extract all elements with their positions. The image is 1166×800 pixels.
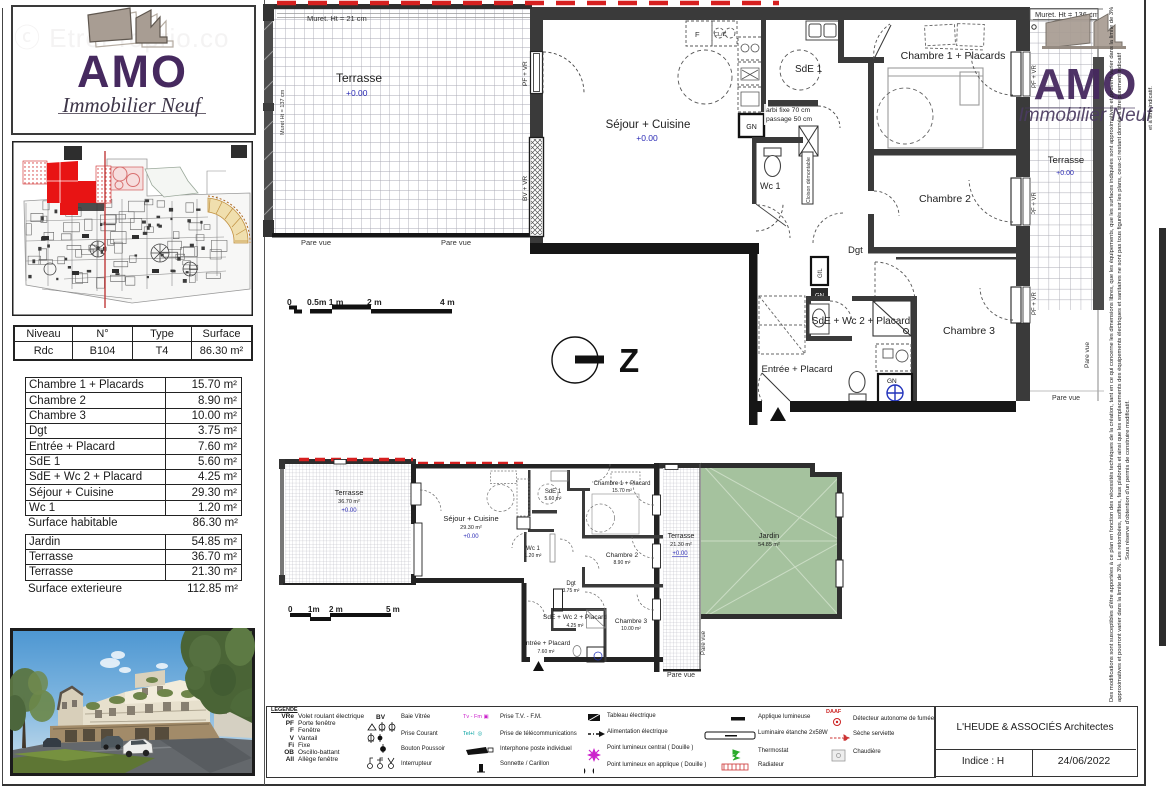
- svg-text:Jardin: Jardin: [759, 531, 779, 540]
- svg-text:4 m: 4 m: [440, 297, 455, 307]
- svg-text:Wc 1: Wc 1: [760, 181, 781, 191]
- svg-text:Terrasse: Terrasse: [668, 533, 695, 540]
- svg-text:PF + VR: PF + VR: [522, 61, 529, 86]
- svg-text:Des modifications sont suscept: Des modifications sont susceptibles d'êt…: [1109, 7, 1115, 702]
- svg-text:Pare vue: Pare vue: [701, 630, 707, 655]
- svg-text:7.60 m²: 7.60 m²: [538, 649, 555, 655]
- svg-text:F: F: [695, 30, 700, 39]
- svg-text:Z: Z: [619, 342, 639, 379]
- svg-text:10.00 m²: 10.00 m²: [621, 626, 641, 632]
- svg-text:1.20 m²: 1.20 m²: [525, 553, 542, 559]
- svg-text:Chambre 1 + Placards: Chambre 1 + Placards: [901, 50, 1006, 62]
- svg-text:GN: GN: [887, 378, 897, 385]
- svg-text:SdE 1: SdE 1: [545, 489, 562, 495]
- svg-text:Entrée + Placard: Entrée + Placard: [522, 640, 571, 647]
- svg-text:+0.00: +0.00: [463, 534, 479, 540]
- svg-text:GfL: GfL: [818, 268, 824, 278]
- svg-text:+0.00: +0.00: [636, 133, 658, 143]
- svg-text:54.85 m²: 54.85 m²: [758, 542, 780, 548]
- svg-text:et à titre indicatif.: et à titre indicatif.: [1148, 86, 1154, 130]
- svg-text:8.90 m²: 8.90 m²: [614, 560, 631, 566]
- svg-text:Entrée + Placard: Entrée + Placard: [761, 364, 832, 375]
- svg-text:passage 50 cm: passage 50 cm: [766, 116, 812, 123]
- svg-text:+0.00: +0.00: [346, 88, 368, 98]
- svg-text:Pare vue: Pare vue: [441, 238, 471, 247]
- svg-text:+0.00: +0.00: [1056, 170, 1074, 177]
- svg-text:Séjour + Cuisine: Séjour + Cuisine: [443, 514, 498, 523]
- svg-text:4.25 m²: 4.25 m²: [567, 623, 584, 629]
- svg-text:2 m: 2 m: [329, 605, 343, 614]
- svg-text:CL/C: CL/C: [714, 32, 727, 38]
- svg-text:Pare vue: Pare vue: [301, 238, 331, 247]
- svg-text:Wc 1: Wc 1: [526, 546, 540, 552]
- svg-text:29.30 m²: 29.30 m²: [460, 525, 482, 531]
- svg-text:36.70 m²: 36.70 m²: [338, 499, 360, 505]
- svg-text:Pare vue: Pare vue: [1052, 395, 1080, 402]
- svg-text:Cloison démontable: Cloison démontable: [806, 157, 812, 203]
- svg-text:approximatives et pourront var: approximatives et pourront varier dans l…: [1117, 52, 1123, 702]
- svg-text:1m: 1m: [308, 605, 320, 614]
- svg-text:15.70 m²: 15.70 m²: [612, 488, 632, 494]
- svg-text:Séjour + Cuisine: Séjour + Cuisine: [606, 119, 691, 131]
- svg-text:Terrasse: Terrasse: [1048, 155, 1084, 166]
- svg-text:Chambre 2: Chambre 2: [919, 193, 971, 205]
- svg-text:SdE + Wc 2 + Placard: SdE + Wc 2 + Placard: [543, 614, 607, 621]
- svg-text:0: 0: [288, 605, 293, 614]
- svg-text:GN: GN: [746, 124, 757, 131]
- svg-text:Sous réserve d'obtention d'un: Sous réserve d'obtention d'un permis de …: [1125, 400, 1131, 560]
- svg-text:Dgt: Dgt: [848, 245, 863, 256]
- svg-text:BV + VR: BV + VR: [522, 176, 529, 201]
- svg-text:arbi fixe 70 cm: arbi fixe 70 cm: [766, 107, 811, 114]
- svg-text:+0.00: +0.00: [672, 551, 688, 557]
- svg-text:Muret. Ht = 21 cm: Muret. Ht = 21 cm: [307, 14, 367, 23]
- svg-text:Pare vue: Pare vue: [667, 672, 695, 679]
- svg-text:+0.00: +0.00: [341, 508, 357, 514]
- svg-text:Muret Ht = 137 cm: Muret Ht = 137 cm: [280, 89, 286, 135]
- svg-text:Chambre 3: Chambre 3: [615, 618, 648, 625]
- svg-text:21.30 m²: 21.30 m²: [670, 542, 692, 548]
- svg-text:3.75 m²: 3.75 m²: [563, 588, 580, 594]
- svg-text:Chambre 2: Chambre 2: [606, 552, 639, 559]
- svg-text:5 m: 5 m: [386, 605, 400, 614]
- svg-text:Chambre 1 + Placard: Chambre 1 + Placard: [594, 481, 651, 487]
- svg-text:Chambre 3: Chambre 3: [943, 325, 995, 337]
- svg-text:SdE 1: SdE 1: [795, 64, 823, 75]
- svg-text:Terrasse: Terrasse: [335, 488, 364, 497]
- svg-text:Dgt: Dgt: [566, 581, 576, 587]
- svg-text:5.60 m²: 5.60 m²: [545, 496, 562, 502]
- svg-text:Pare vue: Pare vue: [1084, 342, 1091, 368]
- svg-text:Terrasse: Terrasse: [336, 71, 382, 85]
